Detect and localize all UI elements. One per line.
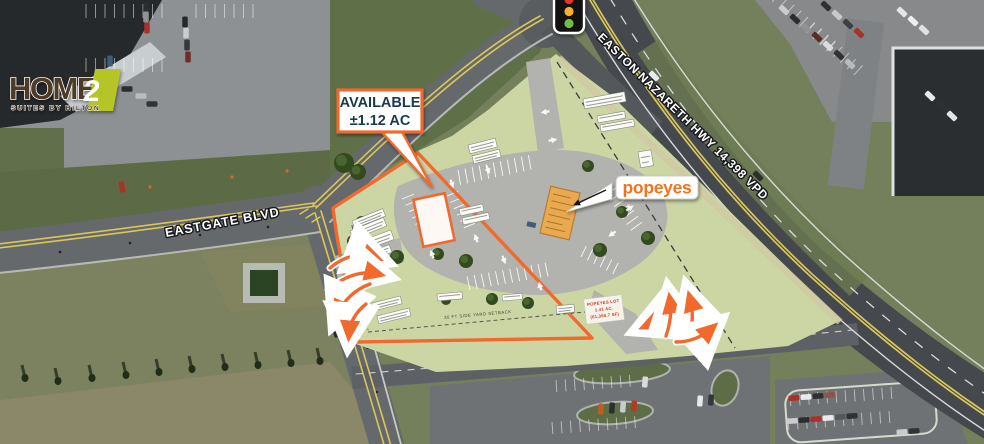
tree-highlight bbox=[352, 166, 361, 175]
home2-logo: HOME 2 SUITES BY HILTON bbox=[9, 69, 121, 112]
car bbox=[697, 395, 703, 406]
car bbox=[896, 429, 907, 435]
building-right bbox=[893, 48, 984, 196]
car bbox=[800, 394, 811, 400]
roadside-marker bbox=[267, 226, 270, 229]
tree bbox=[123, 371, 130, 379]
car bbox=[631, 400, 637, 411]
tree-highlight bbox=[583, 161, 590, 168]
tree bbox=[55, 377, 62, 385]
car bbox=[147, 101, 158, 107]
tree bbox=[22, 374, 29, 382]
aerial-site-plan-map: 30 FT SIDE YARD SETBACK WEST SIDE YARD S… bbox=[0, 0, 984, 444]
car bbox=[144, 23, 150, 34]
tree bbox=[317, 357, 324, 365]
tree bbox=[222, 363, 229, 371]
car bbox=[810, 416, 821, 422]
car bbox=[185, 52, 191, 63]
mini-label-box bbox=[638, 150, 654, 168]
traffic-light-green bbox=[564, 19, 573, 28]
tree bbox=[156, 368, 163, 376]
tree bbox=[255, 361, 262, 369]
roadside-marker bbox=[285, 169, 288, 172]
home2-numeral: 2 bbox=[82, 75, 102, 108]
car bbox=[812, 393, 823, 399]
tree bbox=[189, 365, 196, 373]
car bbox=[143, 2, 149, 13]
car bbox=[122, 86, 133, 92]
car bbox=[107, 56, 113, 67]
car bbox=[136, 93, 147, 99]
roadside-marker bbox=[129, 242, 132, 245]
car bbox=[708, 394, 714, 405]
car bbox=[620, 401, 626, 412]
car bbox=[143, 12, 149, 23]
home2-tagline: SUITES BY HILTON bbox=[11, 105, 101, 112]
roadside-marker bbox=[199, 234, 202, 237]
traffic-light-yellow bbox=[564, 7, 573, 16]
tree-highlight bbox=[487, 294, 494, 301]
car bbox=[798, 417, 809, 423]
car bbox=[184, 40, 190, 51]
car bbox=[824, 392, 835, 398]
car bbox=[609, 402, 615, 413]
car bbox=[846, 413, 857, 419]
tree-highlight bbox=[642, 232, 650, 240]
car bbox=[908, 428, 919, 434]
callout-area: ±1.12 AC bbox=[350, 113, 411, 129]
tree-highlight bbox=[594, 244, 602, 252]
popeyes-lot-label: POPEYES LOT 1.41 AC. (61,368.7 SF) bbox=[584, 295, 625, 324]
mini-label bbox=[556, 304, 575, 314]
popeyes-logo-text: popeyes bbox=[623, 178, 692, 198]
callout-title: AVAILABLE bbox=[340, 95, 421, 111]
roadside-marker bbox=[148, 185, 151, 188]
car bbox=[786, 418, 797, 424]
car bbox=[642, 376, 648, 387]
tree-highlight bbox=[336, 155, 347, 166]
tree bbox=[89, 374, 96, 382]
car bbox=[822, 415, 833, 421]
roadside-marker bbox=[230, 175, 233, 178]
car bbox=[598, 403, 604, 414]
car bbox=[182, 17, 188, 28]
mini-label bbox=[638, 150, 654, 168]
pad-planting bbox=[250, 270, 278, 296]
tree-highlight bbox=[523, 298, 530, 305]
car bbox=[834, 414, 845, 420]
tree-highlight bbox=[617, 207, 624, 214]
tree-highlight bbox=[460, 255, 468, 263]
traffic-light-icon bbox=[554, 0, 584, 33]
car bbox=[183, 28, 189, 39]
roadside-marker bbox=[376, 391, 378, 393]
car bbox=[788, 395, 799, 401]
roadside-marker bbox=[59, 251, 62, 254]
tree-highlight bbox=[391, 251, 399, 259]
tree bbox=[288, 359, 295, 367]
tree-highlight bbox=[433, 249, 440, 256]
